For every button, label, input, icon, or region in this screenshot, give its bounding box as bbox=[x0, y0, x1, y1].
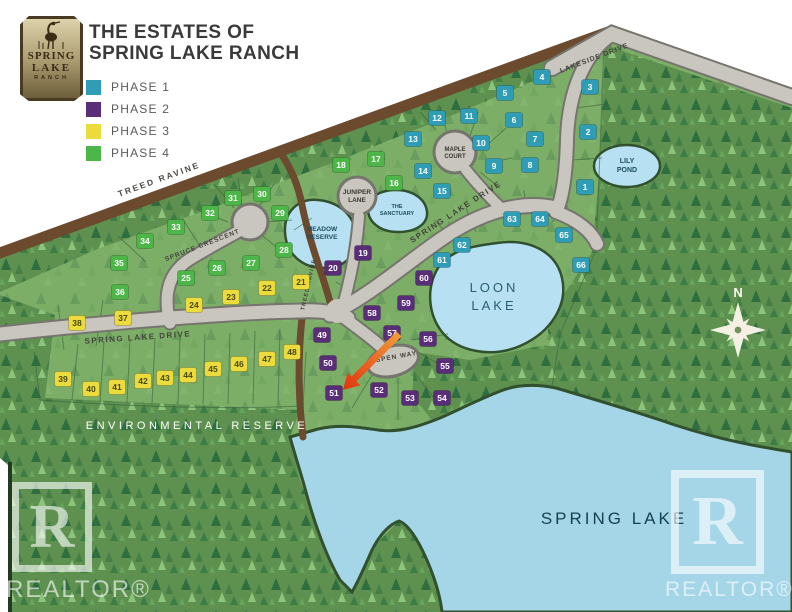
compass-n-label: N bbox=[733, 285, 742, 300]
svg-text:55: 55 bbox=[440, 361, 450, 371]
plat-map-image: TREED RAVINE TREED RAVINE LAKESIDE DRIVE… bbox=[0, 0, 792, 612]
lot-marker-46: 46 bbox=[231, 357, 248, 372]
svg-text:30: 30 bbox=[257, 189, 267, 199]
lily-pond-label-1: LILY bbox=[620, 158, 635, 165]
spring-lake-label: SPRING LAKE bbox=[541, 509, 687, 528]
legend-row-phase-1: PHASE 1 bbox=[86, 76, 170, 98]
legend-row-phase-2: PHASE 2 bbox=[86, 98, 170, 120]
svg-text:5: 5 bbox=[503, 88, 508, 98]
svg-text:28: 28 bbox=[279, 245, 289, 255]
svg-text:21: 21 bbox=[296, 277, 306, 287]
lot-marker-41: 41 bbox=[109, 380, 126, 395]
lot-marker-60: 60 bbox=[416, 271, 433, 286]
svg-text:58: 58 bbox=[367, 308, 377, 318]
legend-swatch bbox=[86, 146, 101, 161]
legend-label: PHASE 2 bbox=[111, 102, 170, 116]
lot-marker-2: 2 bbox=[580, 125, 597, 140]
lot-marker-23: 23 bbox=[223, 290, 240, 305]
lot-marker-21: 21 bbox=[293, 275, 310, 290]
legend-row-phase-3: PHASE 3 bbox=[86, 120, 170, 142]
svg-text:6: 6 bbox=[512, 115, 517, 125]
svg-text:14: 14 bbox=[418, 166, 428, 176]
lot-marker-19: 19 bbox=[355, 246, 372, 261]
lot-marker-16: 16 bbox=[386, 176, 403, 191]
lot-marker-35: 35 bbox=[111, 256, 128, 271]
lot-marker-59: 59 bbox=[398, 296, 415, 311]
svg-text:64: 64 bbox=[535, 214, 545, 224]
realtor-wordmark: REALTOR® bbox=[665, 578, 792, 602]
lily-pond-label-2: POND bbox=[617, 167, 637, 174]
svg-text:53: 53 bbox=[405, 393, 415, 403]
lot-marker-52: 52 bbox=[371, 383, 388, 398]
lot-marker-58: 58 bbox=[364, 306, 381, 321]
lot-marker-25: 25 bbox=[178, 271, 195, 286]
lily-pond-water bbox=[594, 145, 660, 187]
svg-text:34: 34 bbox=[140, 236, 150, 246]
lot-marker-44: 44 bbox=[180, 368, 197, 383]
lot-marker-3: 3 bbox=[582, 80, 599, 95]
svg-text:11: 11 bbox=[465, 111, 474, 121]
svg-text:23: 23 bbox=[226, 292, 236, 302]
lot-marker-49: 49 bbox=[314, 328, 331, 343]
lot-marker-51: 51 bbox=[326, 386, 343, 401]
lot-marker-65: 65 bbox=[556, 228, 573, 243]
lot-marker-27: 27 bbox=[243, 256, 260, 271]
lot-marker-48: 48 bbox=[284, 345, 301, 360]
svg-text:42: 42 bbox=[138, 376, 148, 386]
lot-marker-39: 39 bbox=[55, 372, 72, 387]
legend-row-phase-4: PHASE 4 bbox=[86, 142, 170, 164]
environmental-reserve-label: ENVIRONMENTAL RESERVE bbox=[86, 420, 308, 432]
svg-text:24: 24 bbox=[189, 300, 199, 310]
svg-text:54: 54 bbox=[437, 393, 447, 403]
meadow-reserve-label-2: RESERVE bbox=[307, 234, 339, 241]
svg-text:66: 66 bbox=[576, 260, 586, 270]
svg-text:10: 10 bbox=[476, 138, 486, 148]
legend-label: PHASE 1 bbox=[111, 80, 170, 94]
svg-text:1: 1 bbox=[583, 182, 588, 192]
legend-swatch bbox=[86, 102, 101, 117]
svg-text:35: 35 bbox=[114, 258, 124, 268]
lot-marker-13: 13 bbox=[405, 132, 422, 147]
lot-marker-5: 5 bbox=[497, 86, 514, 101]
svg-text:44: 44 bbox=[183, 370, 193, 380]
svg-text:52: 52 bbox=[374, 385, 384, 395]
lot-marker-45: 45 bbox=[205, 362, 222, 377]
svg-text:47: 47 bbox=[262, 354, 272, 364]
svg-text:62: 62 bbox=[457, 240, 467, 250]
lot-marker-34: 34 bbox=[137, 234, 154, 249]
lot-marker-55: 55 bbox=[437, 359, 454, 374]
logo-text-spring: SPRING bbox=[23, 51, 80, 62]
svg-text:29: 29 bbox=[275, 208, 285, 218]
lot-marker-40: 40 bbox=[83, 382, 100, 397]
svg-text:20: 20 bbox=[328, 263, 338, 273]
svg-text:19: 19 bbox=[358, 248, 368, 258]
svg-text:12: 12 bbox=[432, 113, 442, 123]
lot-marker-63: 63 bbox=[504, 212, 521, 227]
lot-marker-47: 47 bbox=[259, 352, 276, 367]
lot-marker-53: 53 bbox=[402, 391, 419, 406]
logo-text-lake: LAKE bbox=[23, 62, 80, 74]
lot-marker-11: 11 bbox=[461, 109, 478, 124]
lot-marker-37: 37 bbox=[115, 311, 132, 326]
realtor-r-logo: R bbox=[12, 482, 92, 572]
legend-swatch bbox=[86, 124, 101, 139]
lot-marker-12: 12 bbox=[429, 111, 446, 126]
sanctuary-label-2: SANCTUARY bbox=[380, 211, 415, 217]
svg-text:63: 63 bbox=[507, 214, 517, 224]
page-title: THE ESTATES OF SPRING LAKE RANCH bbox=[89, 22, 300, 64]
svg-text:40: 40 bbox=[86, 384, 96, 394]
realtor-watermark-left: R REALTOR® bbox=[12, 482, 92, 572]
svg-text:56: 56 bbox=[423, 334, 433, 344]
svg-text:33: 33 bbox=[171, 222, 181, 232]
lot-marker-7: 7 bbox=[527, 132, 544, 147]
lot-marker-24: 24 bbox=[186, 298, 203, 313]
lot-marker-64: 64 bbox=[532, 212, 549, 227]
lot-marker-20: 20 bbox=[325, 261, 342, 276]
spring-lake-ranch-logo: SPRING LAKE RANCH bbox=[20, 16, 83, 101]
lot-marker-32: 32 bbox=[202, 206, 219, 221]
svg-text:61: 61 bbox=[437, 255, 447, 265]
legend-swatch bbox=[86, 80, 101, 95]
svg-text:39: 39 bbox=[58, 374, 68, 384]
svg-text:37: 37 bbox=[118, 313, 128, 323]
lot-marker-22: 22 bbox=[259, 281, 276, 296]
lot-marker-10: 10 bbox=[473, 136, 490, 151]
svg-text:51: 51 bbox=[329, 388, 339, 398]
sanctuary-label-1: THE bbox=[392, 204, 403, 210]
lot-marker-61: 61 bbox=[434, 253, 451, 268]
title-line2: SPRING LAKE RANCH bbox=[89, 43, 300, 64]
phase-legend: PHASE 1PHASE 2PHASE 3PHASE 4 bbox=[86, 76, 170, 164]
svg-text:27: 27 bbox=[246, 258, 256, 268]
legend-label: PHASE 4 bbox=[111, 146, 170, 160]
lot-marker-6: 6 bbox=[506, 113, 523, 128]
lot-marker-56: 56 bbox=[420, 332, 437, 347]
lot-marker-43: 43 bbox=[157, 371, 174, 386]
lot-marker-50: 50 bbox=[320, 356, 337, 371]
svg-text:65: 65 bbox=[559, 230, 569, 240]
svg-text:18: 18 bbox=[336, 160, 346, 170]
loon-lake-label-1: LOON bbox=[470, 280, 519, 295]
lot-marker-4: 4 bbox=[534, 70, 551, 85]
lot-marker-30: 30 bbox=[254, 187, 271, 202]
svg-text:49: 49 bbox=[317, 330, 327, 340]
svg-text:59: 59 bbox=[401, 298, 411, 308]
loon-lake-label-2: LAKE bbox=[471, 298, 516, 313]
legend-label: PHASE 3 bbox=[111, 124, 170, 138]
svg-text:9: 9 bbox=[492, 161, 497, 171]
logo-text-ranch: RANCH bbox=[23, 74, 80, 82]
meadow-reserve-label-1: MEADOW bbox=[307, 226, 338, 233]
realtor-r-logo: R bbox=[671, 470, 764, 574]
svg-text:60: 60 bbox=[419, 273, 429, 283]
svg-text:41: 41 bbox=[112, 382, 122, 392]
lot-marker-54: 54 bbox=[434, 391, 451, 406]
lot-marker-38: 38 bbox=[69, 316, 86, 331]
title-line1: THE ESTATES OF bbox=[89, 22, 300, 43]
svg-text:36: 36 bbox=[115, 287, 125, 297]
lot-marker-17: 17 bbox=[368, 152, 385, 167]
svg-text:32: 32 bbox=[205, 208, 215, 218]
lot-marker-31: 31 bbox=[225, 191, 242, 206]
svg-text:45: 45 bbox=[208, 364, 218, 374]
svg-text:22: 22 bbox=[262, 283, 272, 293]
svg-text:16: 16 bbox=[389, 178, 399, 188]
lot-marker-1: 1 bbox=[577, 180, 594, 195]
svg-text:3: 3 bbox=[588, 82, 593, 92]
svg-text:8: 8 bbox=[528, 160, 533, 170]
lot-marker-36: 36 bbox=[112, 285, 129, 300]
svg-text:38: 38 bbox=[72, 318, 82, 328]
realtor-r-letter: R bbox=[692, 487, 743, 557]
svg-text:7: 7 bbox=[533, 134, 538, 144]
lot-marker-9: 9 bbox=[486, 159, 503, 174]
maple-court-label-2: COURT bbox=[444, 154, 466, 160]
lot-marker-18: 18 bbox=[333, 158, 350, 173]
lot-marker-28: 28 bbox=[276, 243, 293, 258]
lot-marker-33: 33 bbox=[168, 220, 185, 235]
lot-marker-15: 15 bbox=[434, 184, 451, 199]
lot-marker-26: 26 bbox=[209, 261, 226, 276]
svg-text:43: 43 bbox=[160, 373, 170, 383]
lot-marker-66: 66 bbox=[573, 258, 590, 273]
juniper-lane-label-1: JUNIPER bbox=[343, 189, 371, 196]
svg-text:25: 25 bbox=[181, 273, 191, 283]
juniper-lane-label-2: LANE bbox=[348, 197, 366, 204]
maple-court-label-1: MAPLE bbox=[445, 147, 466, 153]
realtor-r-letter: R bbox=[30, 496, 75, 558]
svg-text:17: 17 bbox=[371, 154, 381, 164]
lot-marker-29: 29 bbox=[272, 206, 289, 221]
lot-marker-62: 62 bbox=[454, 238, 471, 253]
lot-marker-42: 42 bbox=[135, 374, 152, 389]
svg-text:4: 4 bbox=[540, 72, 545, 82]
realtor-wordmark: REALTOR® bbox=[6, 576, 151, 604]
svg-text:31: 31 bbox=[228, 193, 238, 203]
svg-text:15: 15 bbox=[437, 186, 447, 196]
realtor-watermark-right: R REALTOR® bbox=[671, 470, 764, 574]
lot-marker-14: 14 bbox=[415, 164, 432, 179]
svg-text:46: 46 bbox=[234, 359, 244, 369]
heron-icon bbox=[35, 21, 69, 51]
lot-marker-8: 8 bbox=[522, 158, 539, 173]
svg-text:13: 13 bbox=[408, 134, 418, 144]
svg-text:2: 2 bbox=[586, 127, 591, 137]
svg-text:26: 26 bbox=[212, 263, 222, 273]
svg-text:48: 48 bbox=[287, 347, 297, 357]
svg-text:50: 50 bbox=[323, 358, 333, 368]
